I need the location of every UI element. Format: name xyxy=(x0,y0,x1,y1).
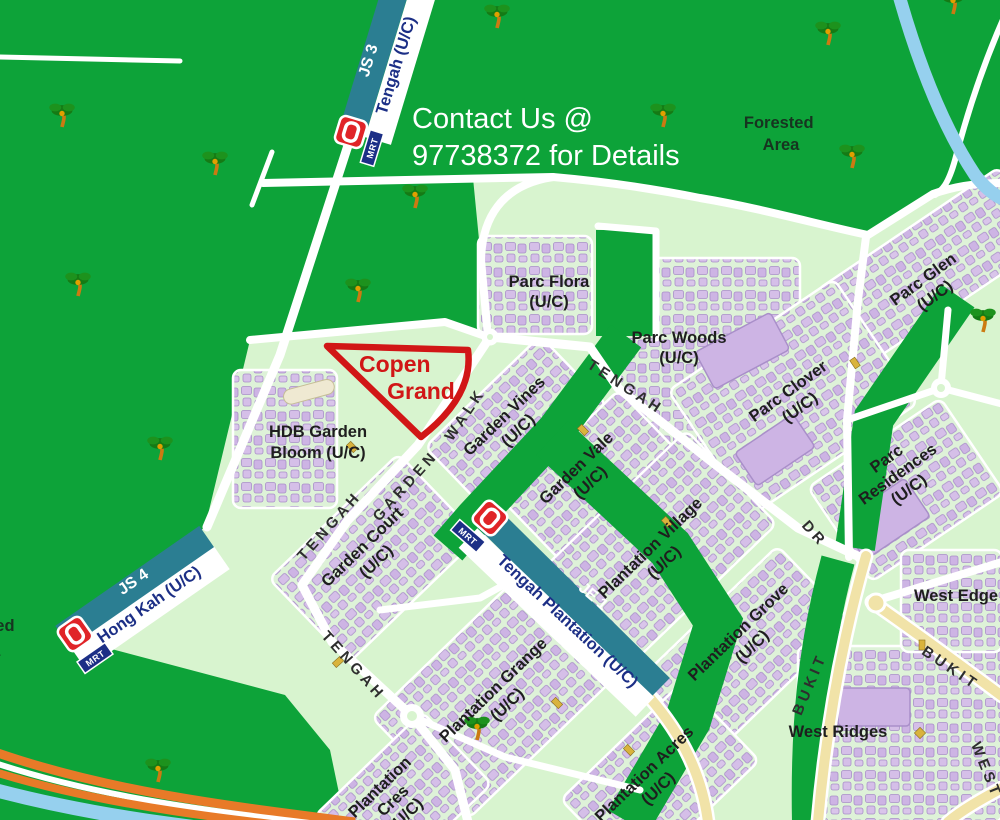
map-svg: JS 3 Tengah (U/C) JS 4 Hong Kah (U/C) JE… xyxy=(0,0,1000,820)
forested-left-line1: Forested xyxy=(0,617,15,635)
contact-line2: 97738372 for Details xyxy=(412,140,680,172)
forested-area-line2: Area xyxy=(763,136,801,154)
copen-grand-line1: Copen xyxy=(359,351,431,377)
label-west-edge: West Edge xyxy=(914,587,998,605)
forested-area-line1: Forested xyxy=(744,114,814,132)
copen-grand-line2: Grand xyxy=(387,378,455,404)
label-west-ridges: West Ridges xyxy=(789,723,888,741)
contact-line1: Contact Us @ xyxy=(412,103,593,135)
location-map: JS 3 Tengah (U/C) JS 4 Hong Kah (U/C) JE… xyxy=(0,0,1000,820)
